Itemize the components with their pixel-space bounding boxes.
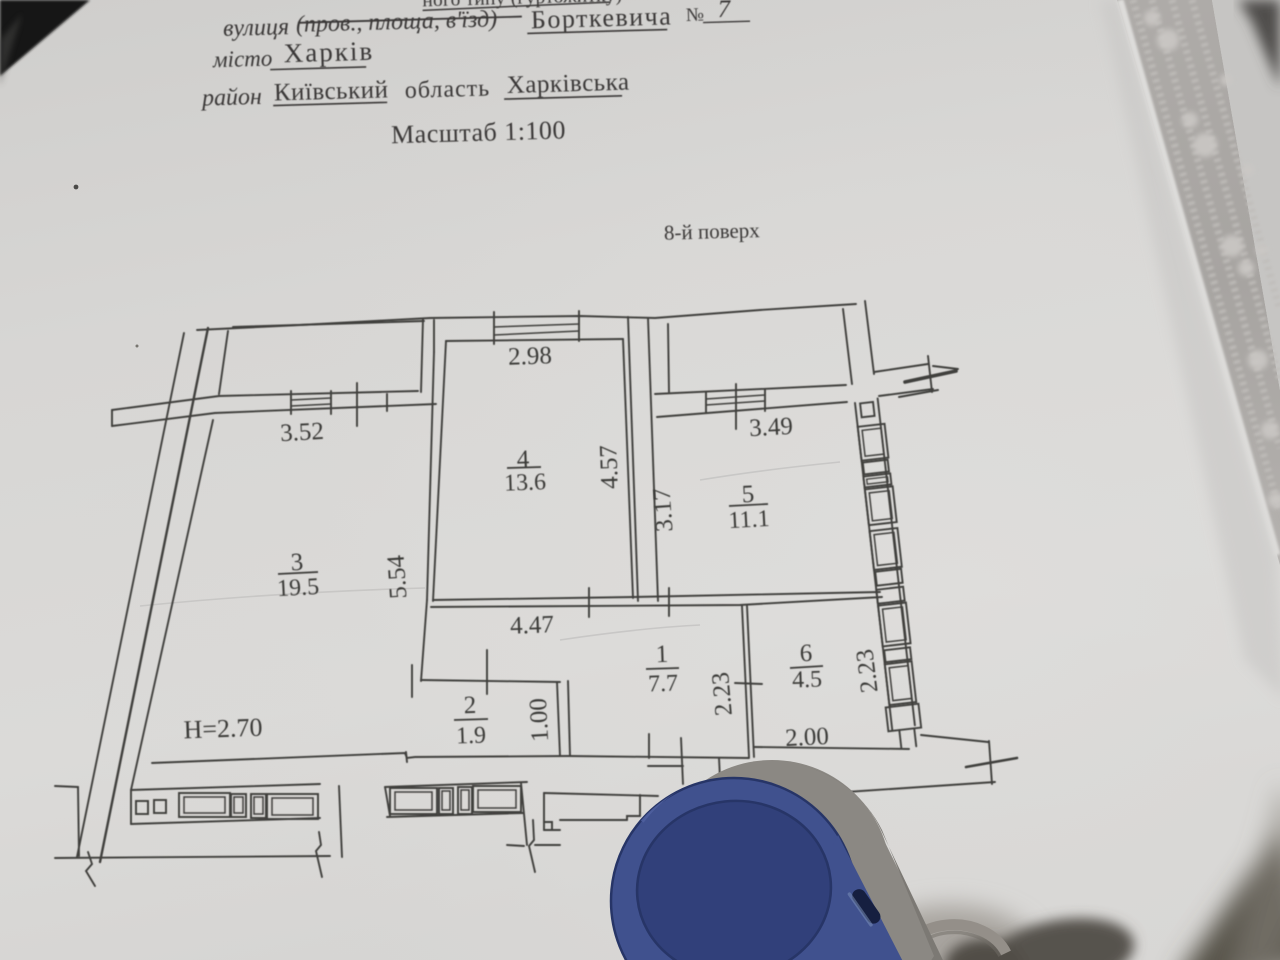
svg-text:вулиця: вулиця: [223, 14, 290, 42]
svg-text:район: район: [200, 84, 263, 112]
svg-text:Масштаб 1:100: Масштаб 1:100: [391, 115, 567, 149]
svg-text:13.6: 13.6: [504, 469, 547, 496]
svg-text:4.47: 4.47: [510, 611, 555, 640]
svg-text:№: №: [686, 4, 705, 25]
svg-text:Харків: Харків: [283, 36, 374, 69]
svg-text:місто: місто: [212, 46, 273, 73]
svg-text:2.23: 2.23: [707, 671, 738, 717]
svg-text:11.1: 11.1: [728, 506, 770, 534]
svg-text:Київський: Київський: [273, 76, 388, 106]
svg-text:2.23: 2.23: [851, 648, 883, 695]
svg-text:1.9: 1.9: [456, 722, 487, 749]
svg-text:6: 6: [799, 640, 812, 667]
svg-text:1: 1: [655, 641, 668, 668]
svg-text:19.5: 19.5: [276, 574, 319, 602]
svg-text:7.7: 7.7: [648, 670, 679, 697]
svg-text:1.00: 1.00: [525, 697, 554, 742]
svg-text:4.5: 4.5: [792, 666, 823, 693]
svg-text:5.54: 5.54: [382, 554, 412, 600]
svg-text:3.17: 3.17: [649, 487, 679, 533]
svg-text:3.49: 3.49: [748, 413, 793, 442]
svg-text:H=2.70: H=2.70: [183, 713, 263, 745]
svg-text:2: 2: [463, 692, 476, 719]
svg-text:2.98: 2.98: [508, 342, 553, 371]
svg-text:область: область: [405, 75, 491, 103]
svg-text:3.52: 3.52: [279, 418, 324, 447]
svg-text:4.57: 4.57: [595, 445, 624, 490]
svg-text:7: 7: [717, 0, 732, 23]
svg-text:2.00: 2.00: [784, 723, 829, 752]
svg-text:8-й поверх: 8-й поверх: [664, 218, 761, 245]
svg-text:Харківська: Харківська: [506, 69, 629, 99]
